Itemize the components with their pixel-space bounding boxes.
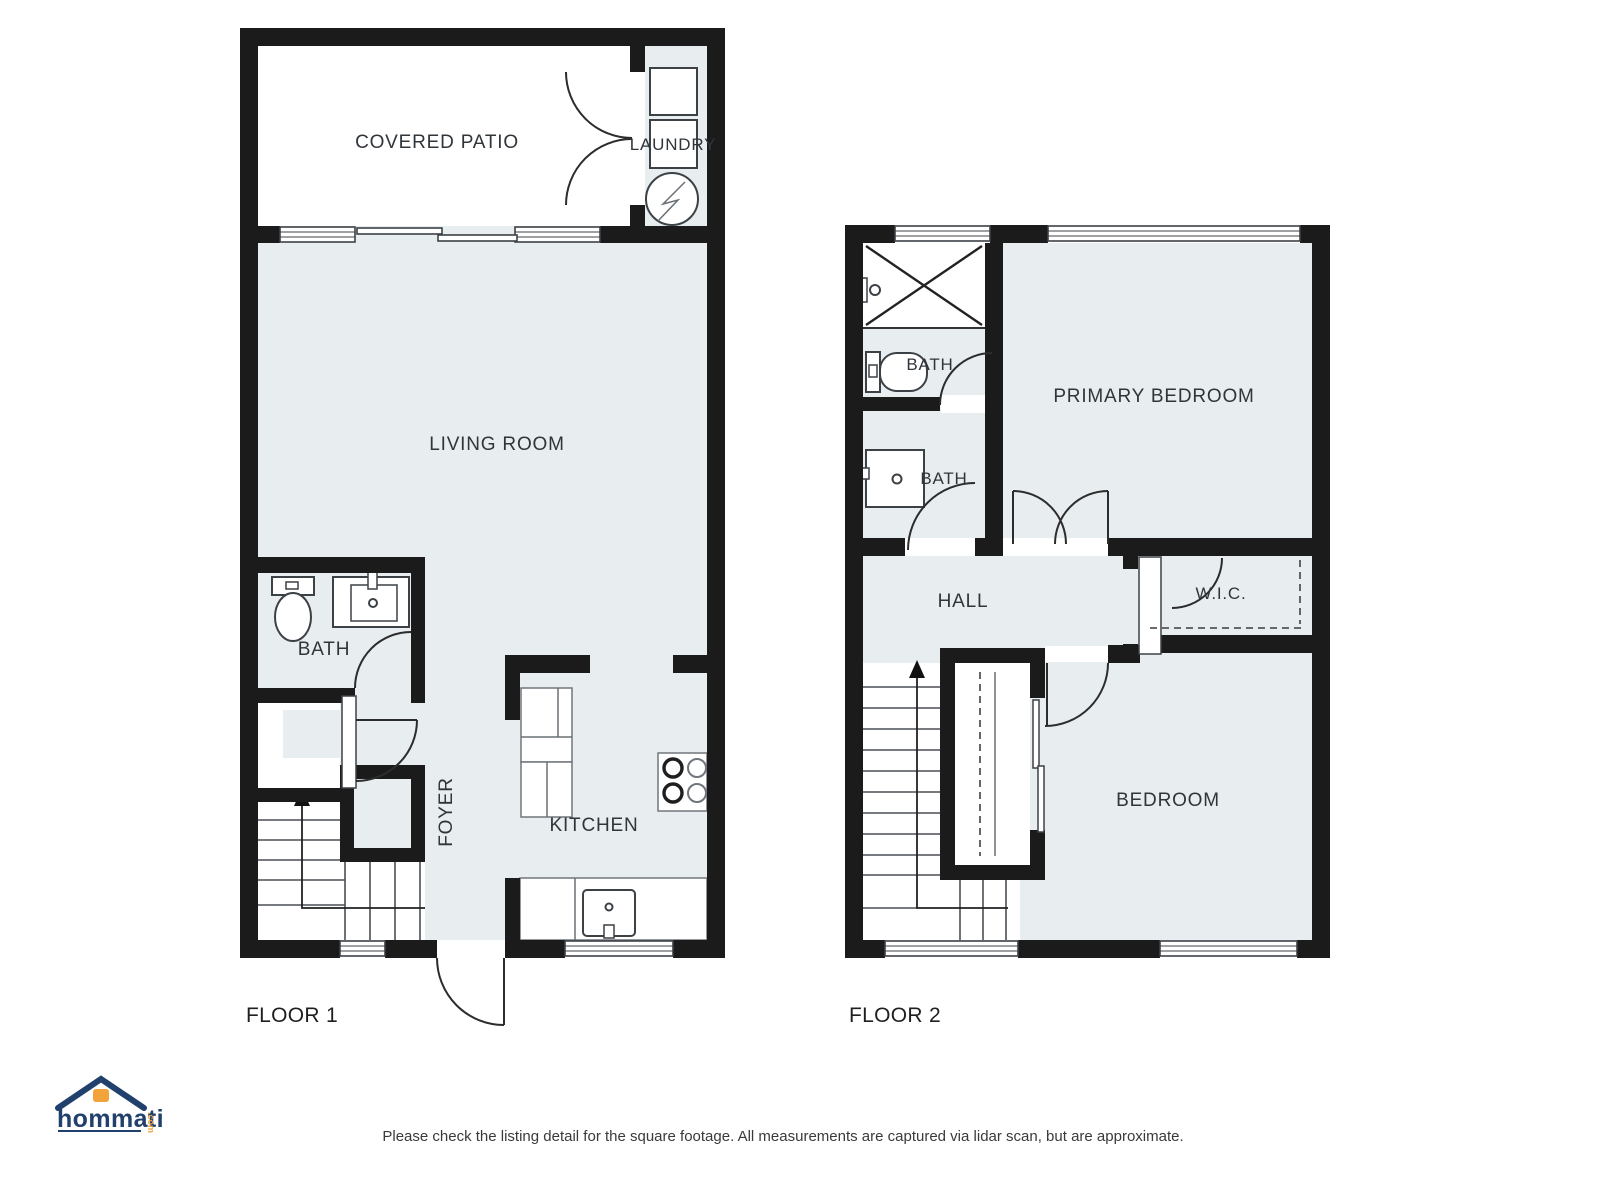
laundry-label: LAUNDRY bbox=[630, 135, 717, 154]
window bbox=[1048, 226, 1300, 241]
sink-icon bbox=[351, 585, 397, 621]
disclaimer-text: Please check the listing detail for the … bbox=[382, 1128, 1183, 1145]
toilet-bowl-icon bbox=[275, 593, 311, 641]
living-room-label: LIVING ROOM bbox=[429, 434, 564, 455]
sliding-door-panel bbox=[438, 235, 517, 241]
sliding-door-panel bbox=[357, 228, 442, 234]
window bbox=[280, 227, 355, 242]
floor1-title: FLOOR 1 bbox=[246, 1004, 338, 1027]
foyer-label: FOYER bbox=[436, 777, 457, 846]
covered-patio-label: COVERED PATIO bbox=[355, 132, 519, 153]
wic-label: W.I.C. bbox=[1195, 584, 1246, 603]
hall-door-panel bbox=[1139, 557, 1161, 654]
bedroom-closet-area bbox=[955, 663, 1030, 865]
window bbox=[565, 941, 673, 956]
landing-area bbox=[940, 880, 1020, 940]
closet-sliding-door bbox=[1033, 700, 1039, 768]
bath-mid-label: BATH bbox=[920, 469, 967, 488]
floorplan-canvas: COVERED PATIO LAUNDRY LIVING ROOM BATH F… bbox=[0, 0, 1600, 1200]
window bbox=[895, 226, 990, 241]
bath-label: BATH bbox=[298, 639, 350, 660]
fridge-icon bbox=[521, 688, 572, 762]
closet-door-frame bbox=[342, 696, 356, 788]
window-icon bbox=[93, 1089, 109, 1102]
washer-icon bbox=[650, 68, 697, 115]
vanity-icon bbox=[866, 450, 924, 507]
stair-landing-area bbox=[340, 862, 425, 940]
floor2-title: FLOOR 2 bbox=[849, 1004, 941, 1027]
window bbox=[885, 941, 1018, 956]
faucet-icon bbox=[368, 571, 377, 589]
kitchen-label: KITCHEN bbox=[550, 815, 639, 836]
closet-sliding-door bbox=[1038, 766, 1044, 832]
floor1-plan: COVERED PATIO LAUNDRY LIVING ROOM BATH F… bbox=[240, 28, 725, 1027]
hommati-logo: hommati .com bbox=[57, 1079, 164, 1133]
window bbox=[1160, 941, 1297, 956]
floor2-plan: BATH BATH PRIMARY BEDROOM HALL W.I.C. BE… bbox=[845, 225, 1330, 1027]
primary-bedroom-label: PRIMARY BEDROOM bbox=[1053, 386, 1254, 407]
floorplan-page: COVERED PATIO LAUNDRY LIVING ROOM BATH F… bbox=[0, 0, 1600, 1200]
logo-suffix: .com bbox=[146, 1112, 156, 1133]
water-heater-icon bbox=[646, 173, 698, 225]
window bbox=[515, 227, 600, 242]
bath-top-label: BATH bbox=[906, 355, 953, 374]
bath-mid-fixtures bbox=[857, 450, 924, 507]
window bbox=[340, 941, 385, 956]
front-door bbox=[437, 958, 504, 1025]
bedroom-label: BEDROOM bbox=[1116, 790, 1220, 811]
stairs-area bbox=[863, 663, 940, 940]
hall-label: HALL bbox=[938, 591, 989, 612]
